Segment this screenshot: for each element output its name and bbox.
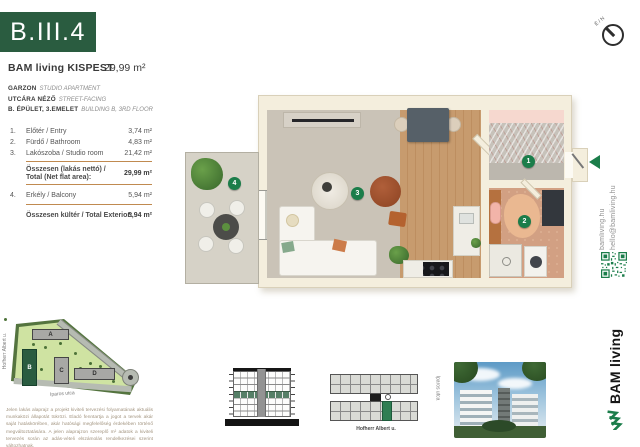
balcony-sliding-door [259, 190, 267, 240]
terracotta-side-table [370, 176, 401, 207]
site-roundabout-center [128, 375, 133, 380]
total-area-value: 29,99 m² [104, 62, 145, 74]
brand-logo-text: BAM living [607, 296, 623, 404]
elevation-core-stripe [257, 369, 266, 417]
attribute-line: UTCÁRA NÉZŐSTREET-FACING [8, 96, 106, 103]
attr-hu: UTCÁRA NÉZŐ [8, 96, 56, 103]
contact-block: bamliving.hu hello@bamliving.hu [597, 140, 619, 250]
kitchen-sink [459, 213, 474, 224]
website-text: bamliving.hu [597, 140, 608, 250]
overview-wing-south [330, 401, 418, 421]
street-label-hofherr: Hofherr Albert u. [2, 321, 8, 381]
exterior-total-value: 5,94 m² [92, 212, 152, 219]
unit-code: B.III.4 [10, 18, 86, 47]
overview-street-right-label: Iparos utca [435, 361, 441, 416]
room-marker-balcony: 4 [228, 177, 241, 190]
site-building-c: C [54, 357, 69, 384]
overview-courtyard [385, 394, 391, 400]
dining-table [407, 108, 449, 142]
qr-code [601, 252, 627, 278]
balcony-chair [228, 238, 244, 254]
table-row: 2. Fürdő / Bathroom 4,83 m² [0, 139, 170, 149]
site-building-b-highlighted: B [22, 349, 37, 386]
room-area: 4,83 m² [92, 139, 152, 146]
building-label: A [48, 332, 52, 338]
unit-code-badge: B.III.4 [0, 12, 96, 52]
building-elevation-diagram [222, 362, 302, 434]
building-label: B [27, 365, 31, 371]
kitchen-plant [471, 238, 481, 248]
attr-en: STREET-FACING [59, 97, 106, 103]
row-number: 4. [10, 192, 16, 199]
attr-en: STUDIO APARTMENT [40, 86, 101, 92]
floor-overview-diagram: Hofherr Albert u. [326, 364, 426, 444]
room-marker-studio: 3 [351, 187, 364, 200]
elevation-balconies-right [291, 374, 295, 416]
pillow-orange [332, 239, 347, 252]
row-number: 2. [10, 139, 16, 146]
washing-machine [524, 246, 547, 277]
overview-street-caption: Hofherr Albert u. [326, 426, 426, 432]
table-row: 4. Erkély / Balcony 5,94 m² [0, 192, 170, 202]
disclaimer-text: Jelen lakás alaprajz a projekt kiviteli … [6, 407, 153, 447]
room-area: 21,42 m² [92, 150, 152, 157]
net-total-value: 29,99 m² [92, 170, 152, 177]
wardrobe-top [489, 110, 564, 123]
table-divider [26, 184, 152, 185]
bathroom-counter-dark [542, 190, 564, 226]
email-text: hello@bamliving.hu [608, 140, 619, 250]
table-divider [26, 161, 152, 162]
net-total-label-en: Total (Net flat area): [26, 174, 91, 181]
compass-icon: É / N [602, 24, 624, 46]
balcony-chair [199, 202, 215, 218]
attr-hu: B. ÉPÜLET, 3.EMELET [8, 106, 78, 113]
elevation-ground-bar [225, 419, 299, 426]
building-render-photo [454, 362, 546, 438]
project-name: BAM living KISPEST [8, 62, 114, 74]
attr-hu: GARZON [8, 85, 37, 92]
room-area: 5,94 m² [92, 192, 152, 199]
sideboard [283, 112, 361, 128]
overview-wing-north [330, 374, 418, 394]
room-name: Erkély / Balcony [26, 192, 76, 199]
compass-needle [605, 27, 615, 37]
balcony-plant [191, 158, 223, 190]
row-number: 1. [10, 128, 16, 135]
room-marker-bathroom: 2 [518, 215, 531, 228]
row-number: 3. [10, 150, 16, 157]
room-marker-entry: 1 [522, 155, 535, 168]
small-side-table [388, 211, 407, 227]
table-divider [26, 204, 152, 205]
balcony-chair [229, 200, 245, 216]
photo-tree-right [522, 362, 546, 381]
compass-north-label: É / N [594, 9, 615, 28]
room-name: Fürdő / Bathroom [26, 139, 80, 146]
round-cushion [286, 214, 299, 227]
room-name: Előtér / Entry [26, 128, 66, 135]
attr-en: BUILDING B, 3RD FLOOR [81, 107, 153, 113]
table-row: 3. Lakószoba / Studio room 21,42 m² [0, 150, 170, 160]
room-area: 3,74 m² [92, 128, 152, 135]
balcony-chair [198, 236, 214, 252]
shower [489, 244, 522, 277]
washer-drum [530, 256, 542, 268]
table-row: 1. Előtér / Entry 3,74 m² [0, 128, 170, 138]
site-plan: A B C D [4, 318, 174, 404]
entry-door-opening [565, 152, 573, 178]
sideboard-decor [292, 119, 354, 122]
building-label: D [92, 371, 96, 377]
coffee-table-decor [322, 182, 332, 192]
site-building-d: D [74, 368, 115, 380]
coffee-table [311, 172, 349, 210]
photo-bush [482, 420, 516, 432]
floor-plan: 1 2 3 4 [183, 90, 603, 298]
bathroom-sink [490, 202, 501, 224]
overview-highlighted-unit [382, 401, 392, 421]
attribute-line: GARZONSTUDIO APARTMENT [8, 85, 100, 92]
elevation-balconies-left [229, 374, 233, 416]
brochure-page: B.III.4 BAM living KISPEST 29,99 m² GARZ… [0, 0, 640, 447]
pillow-green [281, 241, 295, 253]
photo-building-right [512, 394, 538, 428]
overview-core [370, 394, 381, 401]
brand-chevrons-icon [606, 406, 628, 430]
attribute-line: B. ÉPÜLET, 3.EMELETBUILDING B, 3RD FLOOR [8, 106, 153, 113]
kitchen-counter [453, 206, 480, 256]
building-label: C [59, 368, 63, 374]
site-building-a: A [32, 329, 69, 340]
cooktop [423, 262, 449, 276]
balcony-table [213, 214, 239, 240]
